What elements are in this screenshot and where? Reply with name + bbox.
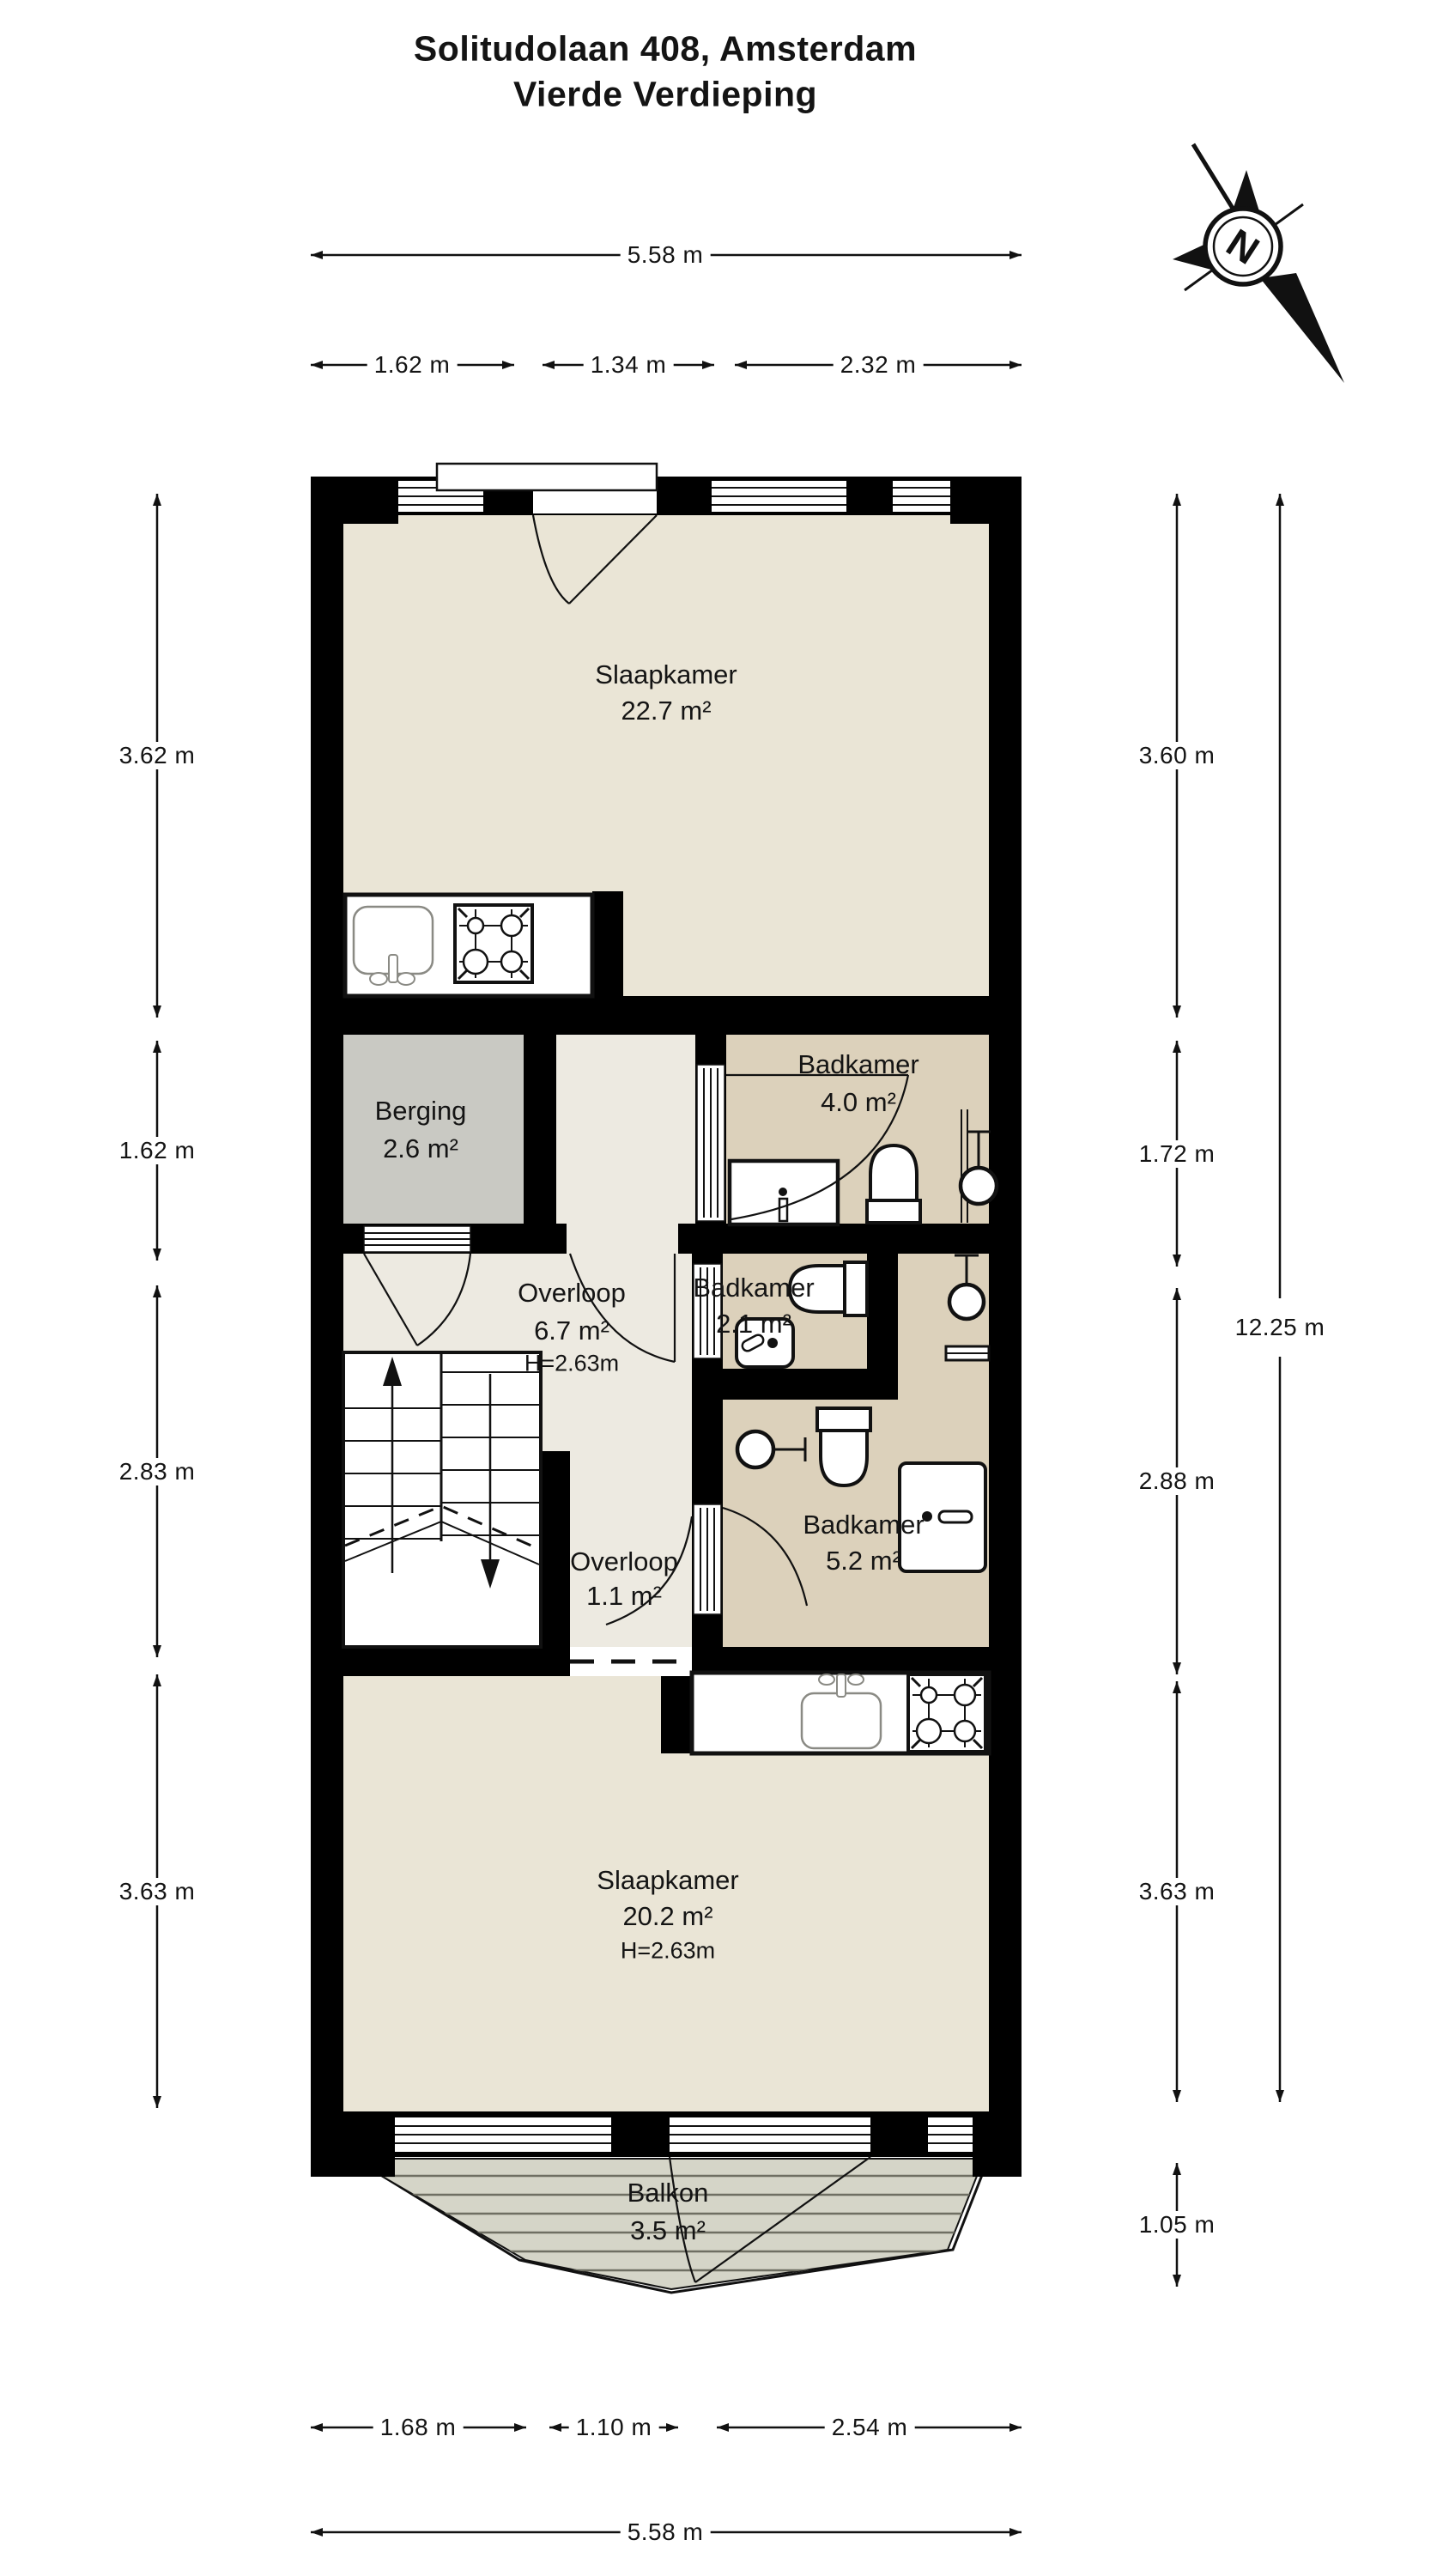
door-leaf-top (437, 464, 657, 490)
dashed-opening (570, 1647, 692, 1676)
room-label-balkon: Balkon (627, 2178, 709, 2208)
dim-left-1: 3.62 m (112, 742, 203, 769)
room-area-berging: 2.6 m² (383, 1133, 458, 1164)
dim-right-4: 3.63 m (1132, 1878, 1222, 1905)
dim-left-2: 1.62 m (112, 1137, 203, 1164)
badkamer4-door-frame (697, 1065, 724, 1221)
dim-right-2: 1.72 m (1132, 1140, 1222, 1168)
dim-bottom-seg-1: 1.68 m (373, 2414, 464, 2441)
room-area-slaapkamer-bottom: 20.2 m² (622, 1901, 712, 1932)
hall-opening (567, 1224, 678, 1254)
kitchen-counter-top (345, 895, 592, 996)
berging-door-frame (364, 1226, 470, 1252)
stairs (343, 1352, 541, 1647)
room-height-slaapkamer-bottom: H=2.63m (621, 1938, 715, 1965)
dim-bottom-seg-2: 1.10 m (569, 2414, 659, 2441)
room-label-badkamer-52: Badkamer (803, 1510, 924, 1540)
room-label-overloop-67: Overloop (518, 1278, 626, 1309)
room-area-badkamer-52: 5.2 m² (826, 1546, 901, 1577)
room-area-badkamer-4: 4.0 m² (821, 1087, 896, 1118)
floorplan-page: N Solitudolaan 408, Amsterdam Vierde Ver… (0, 0, 1449, 2576)
room-height-overloop-67: H=2.63m (524, 1351, 619, 1377)
dim-right-1: 3.60 m (1132, 742, 1222, 769)
room-label-overloop-11: Overloop (570, 1546, 678, 1577)
page-title-line2: Vierde Verdieping (513, 75, 817, 115)
room-label-badkamer-21: Badkamer (693, 1273, 814, 1303)
room-label-slaapkamer-bottom: Slaapkamer (597, 1865, 738, 1896)
badkamer52-door-frame (694, 1504, 721, 1614)
dim-bottom-total: 5.58 m (621, 2518, 711, 2546)
dim-right-5: 1.05 m (1132, 2211, 1222, 2239)
room-label-badkamer-4: Badkamer (797, 1049, 919, 1080)
dim-top-total: 5.58 m (621, 241, 711, 269)
dim-top-seg-1: 1.62 m (367, 351, 458, 379)
toilet-icon-3 (817, 1408, 870, 1485)
room-area-badkamer-21: 2.1 m² (716, 1309, 791, 1340)
room-badkamer-52-arm (898, 1254, 989, 1400)
dim-top-seg-3: 2.32 m (834, 351, 924, 379)
compass-icon: N (1173, 144, 1344, 383)
page-title-line1: Solitudolaan 408, Amsterdam (414, 29, 917, 70)
dim-right-3: 2.88 m (1132, 1467, 1222, 1495)
dim-right-total: 12.25 m (1228, 1314, 1332, 1341)
radiator-icon (946, 1346, 989, 1360)
room-area-slaapkamer-top: 22.7 m² (621, 696, 711, 726)
dim-left-3: 2.83 m (112, 1458, 203, 1485)
room-label-berging: Berging (375, 1096, 467, 1127)
stove-icon (455, 905, 532, 982)
toilet-icon (867, 1145, 920, 1223)
stove-icon-2 (908, 1674, 985, 1752)
dim-left-4: 3.63 m (112, 1878, 203, 1905)
vanity-icon (730, 1161, 838, 1224)
room-area-balkon: 3.5 m² (630, 2215, 706, 2246)
kitchen-counter-bottom (692, 1673, 989, 1753)
room-area-overloop-67: 6.7 m² (534, 1315, 609, 1346)
dim-top-seg-2: 1.34 m (584, 351, 674, 379)
room-label-slaapkamer-top: Slaapkamer (595, 659, 737, 690)
room-berging (343, 1035, 524, 1224)
room-area-overloop-11: 1.1 m² (586, 1581, 662, 1612)
dim-bottom-seg-3: 2.54 m (825, 2414, 915, 2441)
